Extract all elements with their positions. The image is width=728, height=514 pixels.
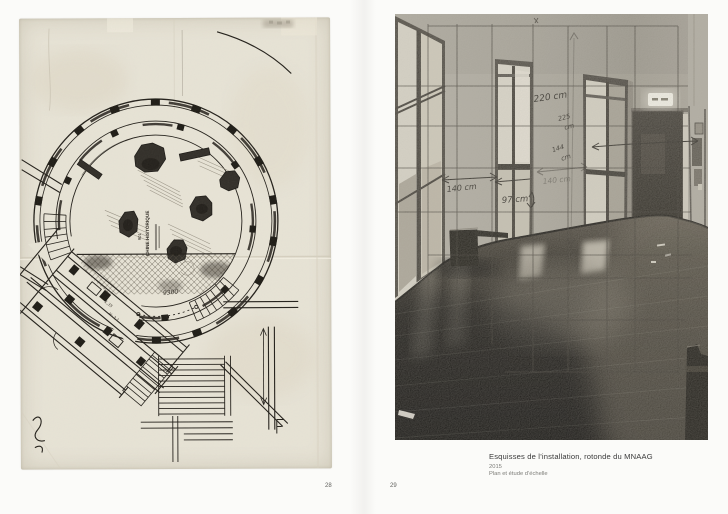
caption-year: 2015 (489, 464, 719, 470)
left-page-sketch-paper: CHINE HISTORIQUE 901 9300 1,35 H: 2,1 (19, 17, 332, 469)
paper-grain (19, 17, 332, 469)
rotunda-photograph: 220 cm 225 cm 144 cm 140 cm 97 cm 140 cm (395, 14, 708, 440)
page-number-left: 28 (325, 483, 332, 489)
right-page-photo: 220 cm 225 cm 144 cm 140 cm 97 cm 140 cm (395, 14, 708, 440)
rotunda-plan-drawing: CHINE HISTORIQUE 901 9300 1,35 H: 2,1 (19, 17, 332, 469)
caption-medium: Plan et étude d’échelle (489, 471, 719, 477)
page-gutter (350, 0, 376, 514)
photo-grain (395, 14, 708, 440)
page-number-right: 29 (390, 483, 397, 489)
book-spread: CHINE HISTORIQUE 901 9300 1,35 H: 2,1 (0, 0, 728, 514)
caption-block: Esquisses de l’installation, rotonde du … (489, 452, 719, 477)
caption-title: Esquisses de l’installation, rotonde du … (489, 452, 719, 461)
